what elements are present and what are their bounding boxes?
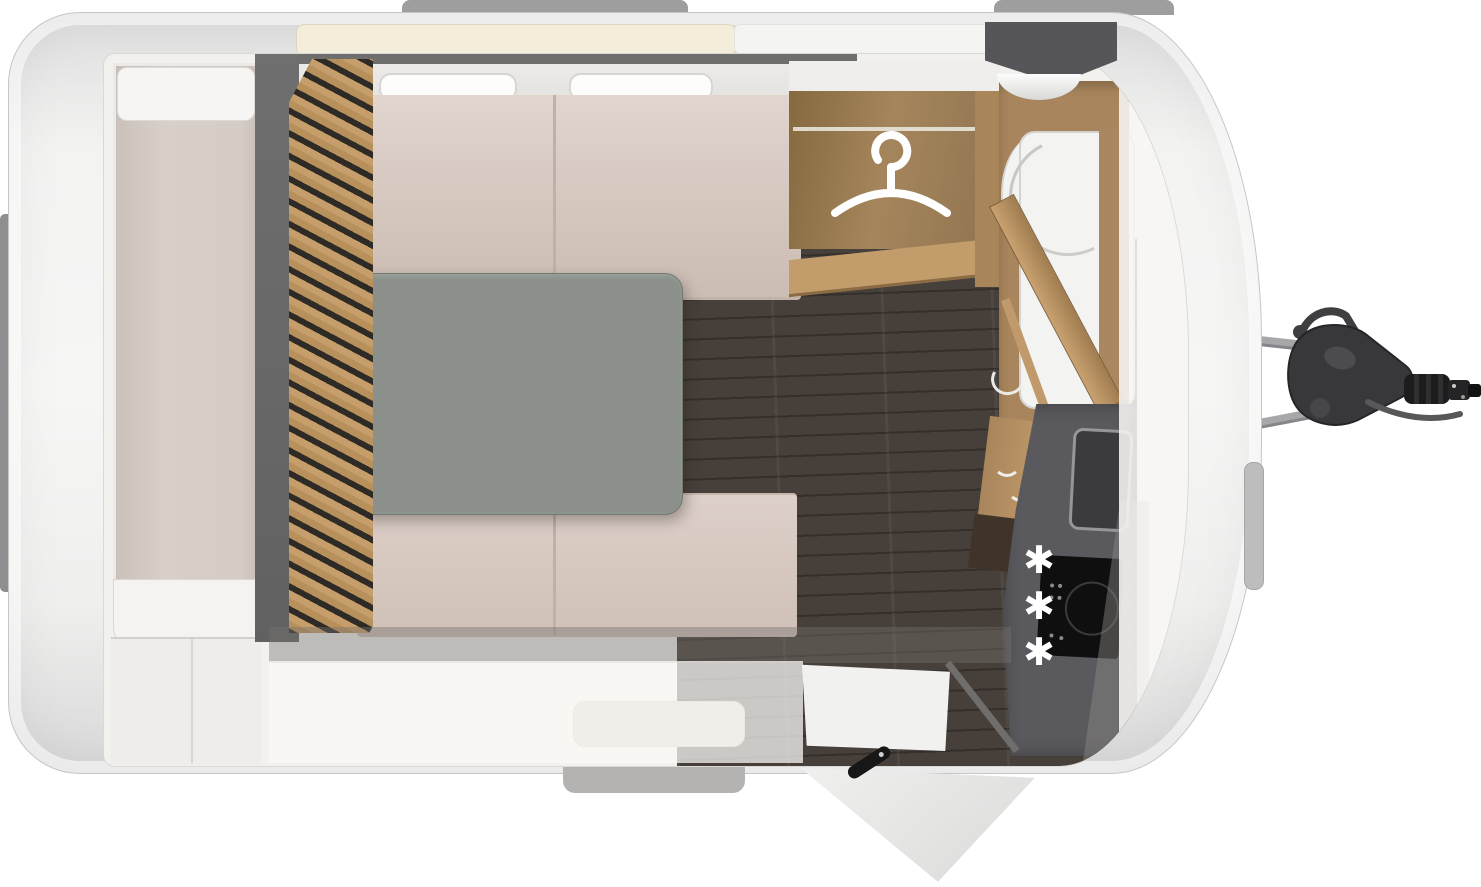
caravan-floorplan: ✱ ✱ ✱: [0, 0, 1481, 887]
grab-handle: [1244, 462, 1264, 590]
rear-storage-room: [113, 63, 259, 596]
skylight-panel: [296, 24, 736, 56]
hanger-icon: [825, 127, 955, 223]
interior-area: ✱ ✱ ✱: [103, 53, 1189, 767]
burner-mark: ✱: [1017, 629, 1061, 675]
front-wall-translucent: [269, 661, 803, 763]
dinette-table: [353, 273, 683, 515]
wardrobe-side-wall: [975, 91, 1001, 287]
wood-slat-wall: [289, 59, 373, 633]
cabinet-handle-icon: [993, 449, 1021, 477]
front-wall-window-band: [269, 627, 1011, 663]
front-curve-translucent: [1119, 56, 1189, 763]
burner-asterisk-marks: ✱ ✱ ✱: [1017, 537, 1061, 687]
rear-cabinet-front: [111, 637, 261, 765]
rear-counter: [113, 579, 261, 643]
burner-mark: ✱: [1017, 583, 1061, 629]
dinette-bench-top: [357, 95, 801, 300]
wardrobe: [789, 61, 1001, 319]
cushion-seam-top: [553, 95, 556, 297]
burner-mark: ✱: [1017, 537, 1061, 583]
wardrobe-top-panel: [789, 61, 1001, 91]
tow-hitch-icon: [1236, 286, 1481, 458]
rear-cabinet-seam: [191, 639, 193, 763]
door-lock-dot: [878, 751, 885, 758]
wood-slat-pattern: [289, 59, 373, 633]
entry-door-open: [790, 760, 1045, 887]
doorway-floor: [799, 663, 953, 751]
entry-step: [563, 767, 745, 793]
rear-cabinet: [117, 67, 255, 121]
